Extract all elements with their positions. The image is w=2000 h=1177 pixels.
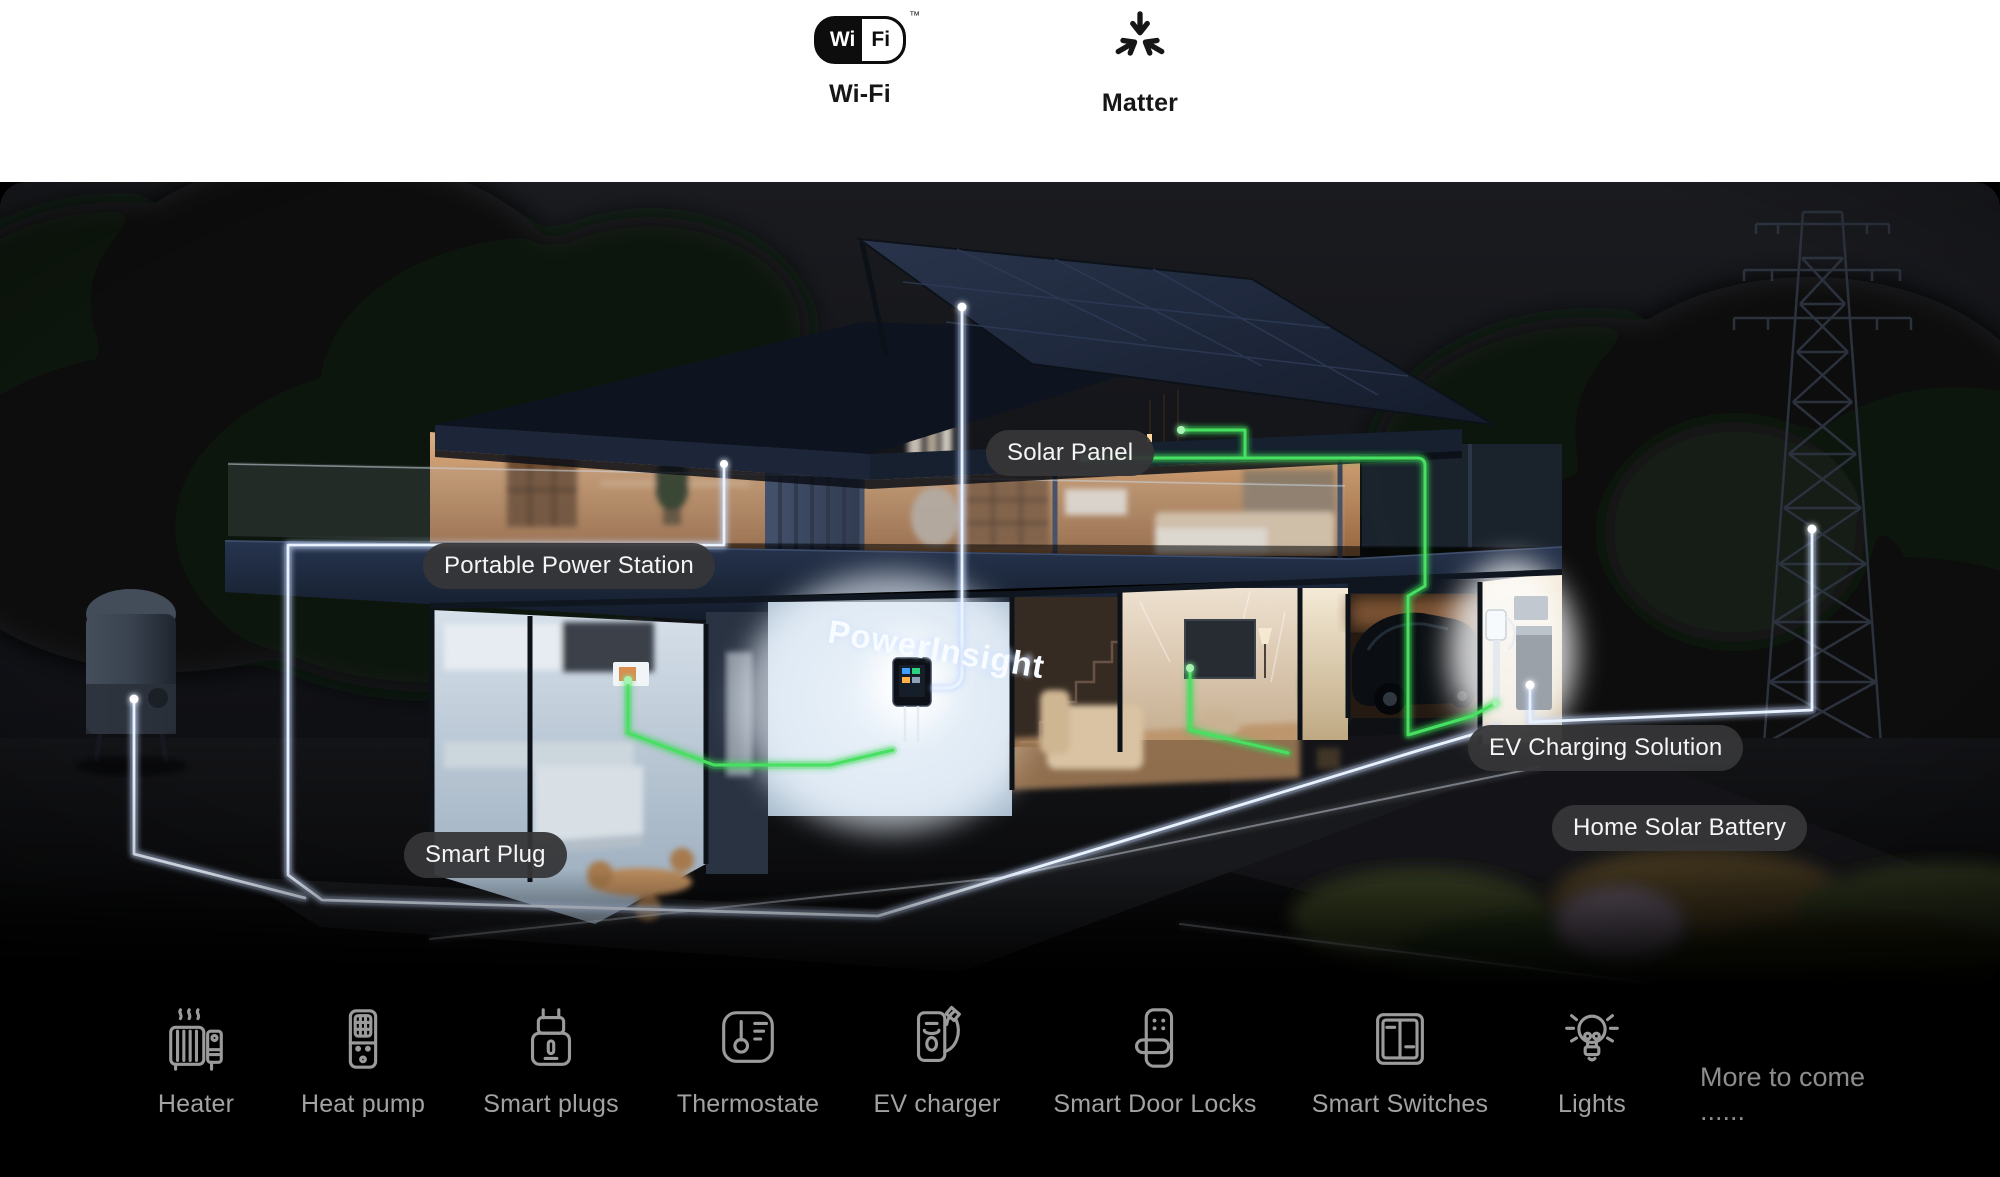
wifi-logo-icon: Wi Fi ™	[814, 16, 906, 64]
device-category-bar: Heater Heat pump Smart plugs	[0, 984, 2000, 1177]
device-label: Lights	[1477, 1090, 1707, 1119]
wifi-logo-left: Wi	[817, 19, 862, 61]
matter-label: Matter	[1102, 89, 1178, 118]
device-label: Smart Door Locks	[1040, 1090, 1270, 1119]
matter-badge: Matter	[1055, 10, 1225, 118]
label-portable-power-station: Portable Power Station	[423, 543, 715, 589]
door-lock-icon	[1040, 1000, 1270, 1074]
more-line1: More to come	[1700, 1060, 1865, 1094]
label-solar-panel: Solar Panel	[986, 430, 1154, 476]
wifi-logo-right: Fi	[862, 19, 903, 61]
device-item-lights: Lights	[1477, 1000, 1707, 1119]
ev-charger-icon	[822, 1000, 1052, 1074]
label-smart-plug: Smart Plug	[404, 832, 567, 878]
connectivity-bar: Wi Fi ™ Wi-Fi Matter	[0, 0, 2000, 182]
more-line2: ......	[1700, 1094, 1865, 1128]
label-home-solar-battery: Home Solar Battery	[1552, 805, 1807, 851]
vignette	[0, 182, 2000, 984]
trademark-mark: ™	[909, 10, 920, 22]
device-item-smart-plugs: Smart plugs	[436, 1000, 666, 1119]
wifi-badge: Wi Fi ™ Wi-Fi	[775, 10, 945, 109]
device-label: Smart plugs	[436, 1090, 666, 1119]
smart-home-scene: PowerInsight PowerInsight	[0, 182, 2000, 984]
device-label: EV charger	[822, 1090, 1052, 1119]
more-to-come-text: More to come ......	[1700, 1060, 1865, 1128]
label-ev-charging-solution: EV Charging Solution	[1468, 725, 1743, 771]
device-item-ev-charger: EV charger	[822, 1000, 1052, 1119]
wifi-label: Wi-Fi	[829, 80, 891, 109]
matter-logo-icon	[1111, 10, 1169, 73]
device-item-smart-door-locks: Smart Door Locks	[1040, 1000, 1270, 1119]
smart-plug-icon	[436, 1000, 666, 1074]
smart-home-hero-image: PowerInsight PowerInsight Solar Panel Po…	[0, 182, 2000, 984]
bottom-fade	[0, 870, 2000, 984]
light-bulb-icon	[1477, 1000, 1707, 1074]
